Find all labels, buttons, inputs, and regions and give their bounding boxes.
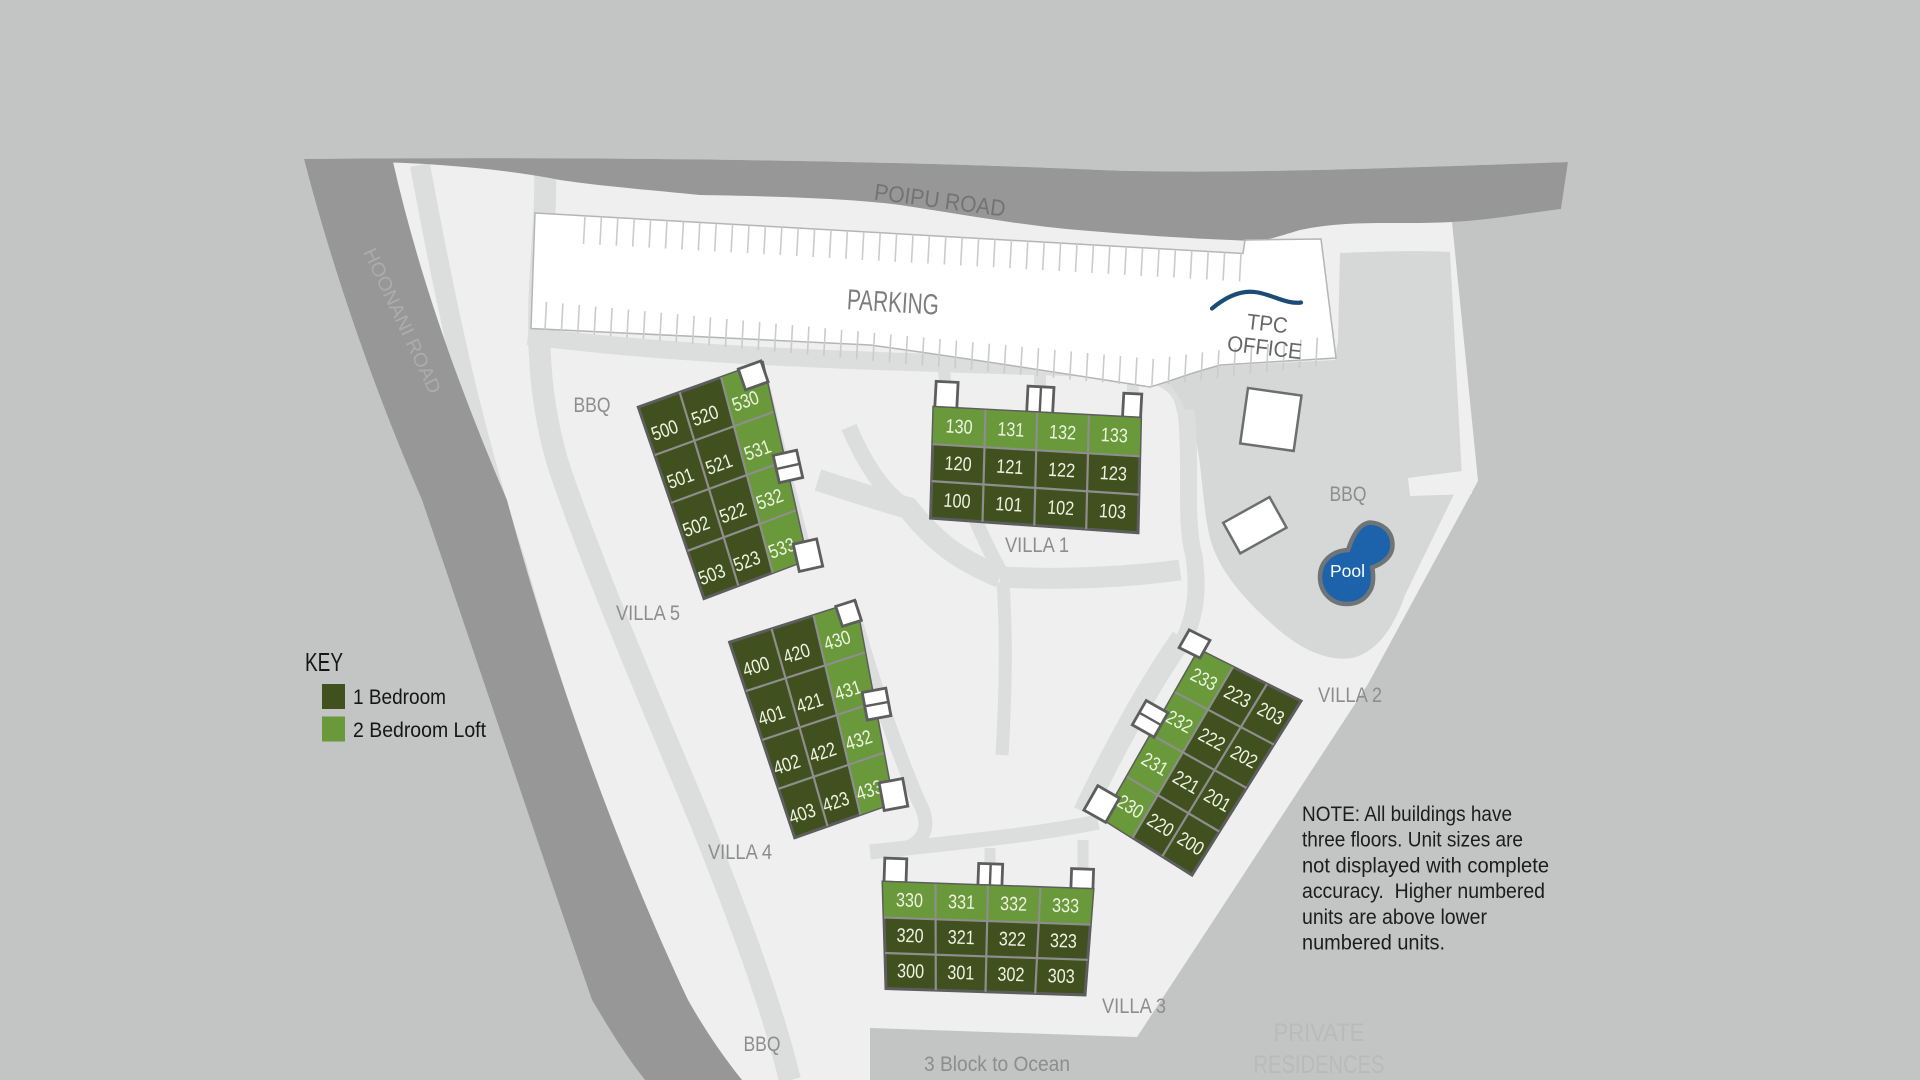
- svg-text:130: 130: [945, 415, 973, 438]
- svg-text:Pool: Pool: [1330, 561, 1365, 581]
- svg-text:131: 131: [997, 418, 1025, 441]
- svg-text:300: 300: [897, 960, 925, 983]
- svg-text:NOTE: All buildings have: NOTE: All buildings have: [1302, 802, 1512, 826]
- svg-text:101: 101: [995, 493, 1023, 517]
- svg-text:VILLA 5: VILLA 5: [616, 602, 680, 625]
- svg-text:323: 323: [1050, 930, 1078, 953]
- svg-text:100: 100: [943, 490, 972, 514]
- svg-text:332: 332: [1000, 893, 1028, 916]
- svg-text:331: 331: [948, 891, 976, 914]
- svg-text:122: 122: [1047, 459, 1075, 483]
- svg-text:PRIVATE: PRIVATE: [1274, 1019, 1365, 1047]
- svg-text:123: 123: [1099, 462, 1127, 486]
- svg-text:BBQ: BBQ: [1330, 483, 1367, 506]
- svg-text:133: 133: [1100, 424, 1128, 447]
- svg-text:PARKING: PARKING: [846, 284, 940, 322]
- svg-text:302: 302: [997, 963, 1025, 986]
- svg-text:not displayed with complete: not displayed with complete: [1302, 853, 1549, 877]
- svg-text:VILLA 2: VILLA 2: [1318, 684, 1382, 707]
- svg-text:BBQ: BBQ: [574, 394, 611, 417]
- svg-text:103: 103: [1098, 500, 1126, 524]
- svg-text:three floors. Unit sizes are: three floors. Unit sizes are: [1302, 828, 1523, 852]
- svg-text:321: 321: [947, 926, 975, 949]
- svg-text:121: 121: [996, 456, 1024, 480]
- svg-text:RESIDENCES: RESIDENCES: [1254, 1051, 1385, 1079]
- svg-text:102: 102: [1046, 497, 1074, 521]
- svg-text:333: 333: [1052, 895, 1080, 918]
- svg-text:3 Block to Ocean: 3 Block to Ocean: [924, 1053, 1070, 1076]
- svg-text:BBQ: BBQ: [744, 1033, 781, 1056]
- svg-text:1 Bedroom: 1 Bedroom: [353, 686, 446, 709]
- svg-text:numbered units.: numbered units.: [1302, 931, 1445, 955]
- svg-text:301: 301: [947, 962, 975, 985]
- svg-text:320: 320: [896, 925, 924, 948]
- svg-text:accuracy. Higher numbered: accuracy. Higher numbered: [1302, 879, 1545, 903]
- svg-text:VILLA 1: VILLA 1: [1005, 534, 1069, 557]
- svg-text:132: 132: [1049, 421, 1077, 444]
- svg-text:2 Bedroom Loft: 2 Bedroom Loft: [353, 719, 486, 742]
- svg-text:VILLA 4: VILLA 4: [708, 841, 772, 864]
- svg-text:330: 330: [896, 889, 924, 912]
- svg-text:322: 322: [998, 928, 1026, 951]
- svg-text:KEY: KEY: [305, 647, 343, 677]
- svg-text:units are above lower: units are above lower: [1302, 905, 1487, 929]
- svg-text:VILLA 3: VILLA 3: [1102, 995, 1166, 1018]
- svg-text:303: 303: [1047, 965, 1075, 988]
- svg-text:120: 120: [944, 452, 972, 476]
